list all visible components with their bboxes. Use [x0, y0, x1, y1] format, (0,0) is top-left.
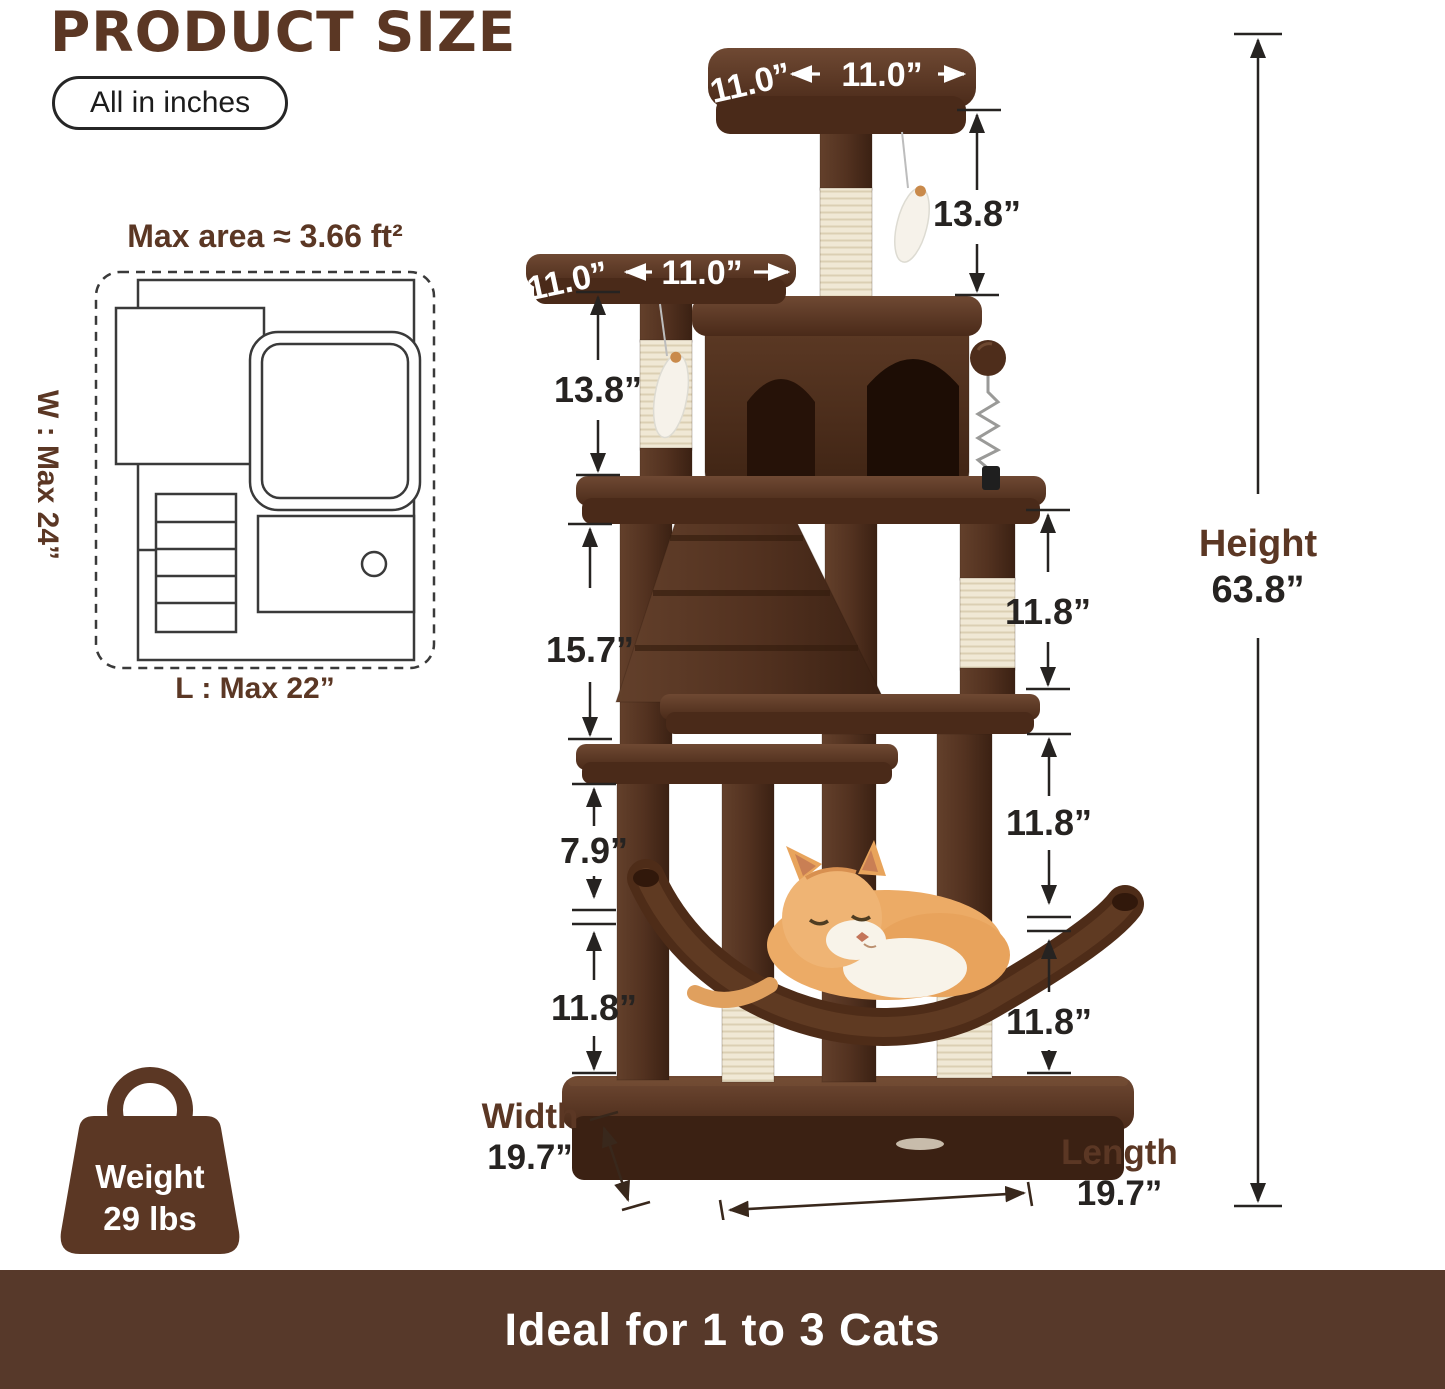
height-value: 63.8” [1212, 569, 1305, 611]
dim-second-platform-front: 11.0” [661, 254, 742, 292]
unit-badge: All in inches [52, 76, 288, 130]
weight-bag-icon: Weight 29 lbs [48, 1056, 248, 1256]
cat-condo [692, 296, 982, 490]
length-value: 19.7” [1042, 1173, 1197, 1214]
dim-mid-right: 11.8” [1006, 802, 1092, 843]
footer-text: Ideal for 1 to 3 Cats [504, 1304, 940, 1356]
footer-banner: Ideal for 1 to 3 Cats [0, 1270, 1445, 1389]
dim-top-platform-front: 11.0” [841, 56, 922, 94]
mouse-toy-icon [888, 182, 936, 265]
weight-value: 29 lbs [103, 1200, 197, 1237]
floorplan-top-perch-outline [250, 332, 420, 510]
width-value: 19.7” [455, 1137, 605, 1178]
dim-top-post: 13.8” [933, 193, 1021, 234]
spring-icon [978, 376, 998, 470]
brand-logo [896, 1138, 944, 1150]
dim-mid-left: 7.9” [560, 830, 628, 871]
pompom-ball-icon [970, 340, 1006, 376]
dim-lower-left: 11.8” [551, 987, 637, 1028]
floorplan-max-length-label: L : Max 22” [105, 672, 405, 706]
cat-tree-illustration: 11.0” 11.0” 11.0” 11.0” 13.8” 13.8” 15.7… [470, 20, 1150, 1220]
dim-upper-right: 11.8” [1005, 591, 1091, 632]
height-label: Height [1199, 523, 1318, 565]
dim-lower-right: 11.8” [1006, 1001, 1092, 1042]
width-dimension: Width 19.7” [455, 1096, 605, 1179]
floorplan-diagram [92, 268, 438, 672]
condo-arch-opening [747, 379, 815, 482]
scratching-post [820, 188, 872, 308]
height-dimension: Height 63.8” [1178, 26, 1338, 1216]
length-label: Length [1042, 1132, 1197, 1173]
dim-second-post: 13.8” [554, 369, 642, 410]
floorplan-condo-outline [258, 516, 414, 612]
floorplan-title: Max area ≈ 3.66 ft² [80, 218, 450, 255]
weight-label: Weight [95, 1158, 204, 1195]
length-dimension: Length 19.7” [1042, 1132, 1197, 1215]
floorplan-ramp-outline [156, 494, 236, 632]
dim-upper-left: 15.7” [546, 629, 634, 670]
condo-arch-opening [867, 359, 959, 482]
floorplan-max-width-label: W : Max 24” [30, 370, 64, 580]
floorplan-platform-outline [116, 308, 264, 464]
width-label: Width [455, 1096, 605, 1137]
